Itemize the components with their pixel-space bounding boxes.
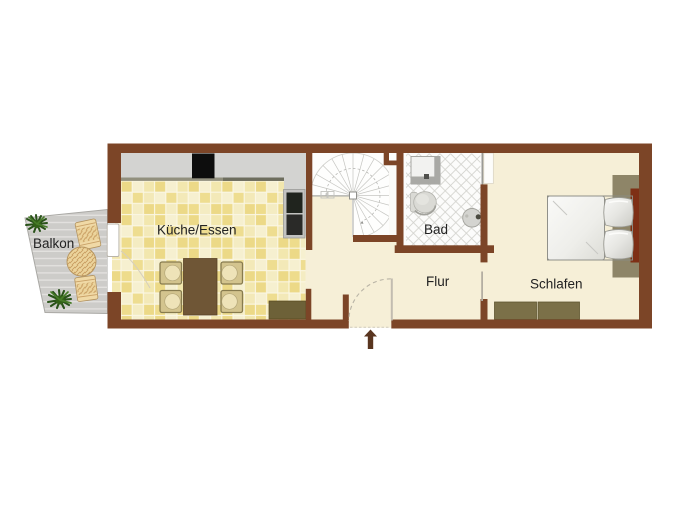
svg-text:Bad: Bad — [424, 222, 448, 237]
svg-text:Küche/Essen: Küche/Essen — [157, 223, 237, 238]
svg-text:Balkon: Balkon — [33, 236, 74, 251]
svg-text:Schlafen: Schlafen — [530, 277, 583, 292]
svg-text:Flur: Flur — [426, 274, 450, 289]
